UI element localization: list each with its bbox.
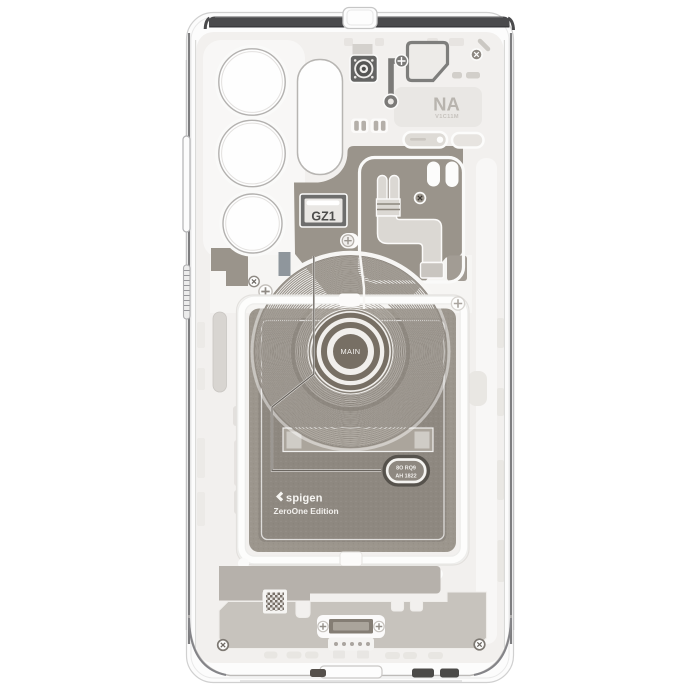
svg-text:AH 1822: AH 1822 (395, 474, 416, 480)
svg-text:GZ1: GZ1 (311, 210, 335, 224)
svg-text:NA: NA (433, 94, 460, 115)
svg-text:MAIN: MAIN (340, 347, 360, 356)
svg-text:ZeroOne Edition: ZeroOne Edition (274, 506, 339, 516)
svg-text:spigen: spigen (286, 493, 323, 505)
svg-text:8O RQ9: 8O RQ9 (396, 466, 416, 472)
svg-text:V1C11M: V1C11M (435, 114, 459, 120)
